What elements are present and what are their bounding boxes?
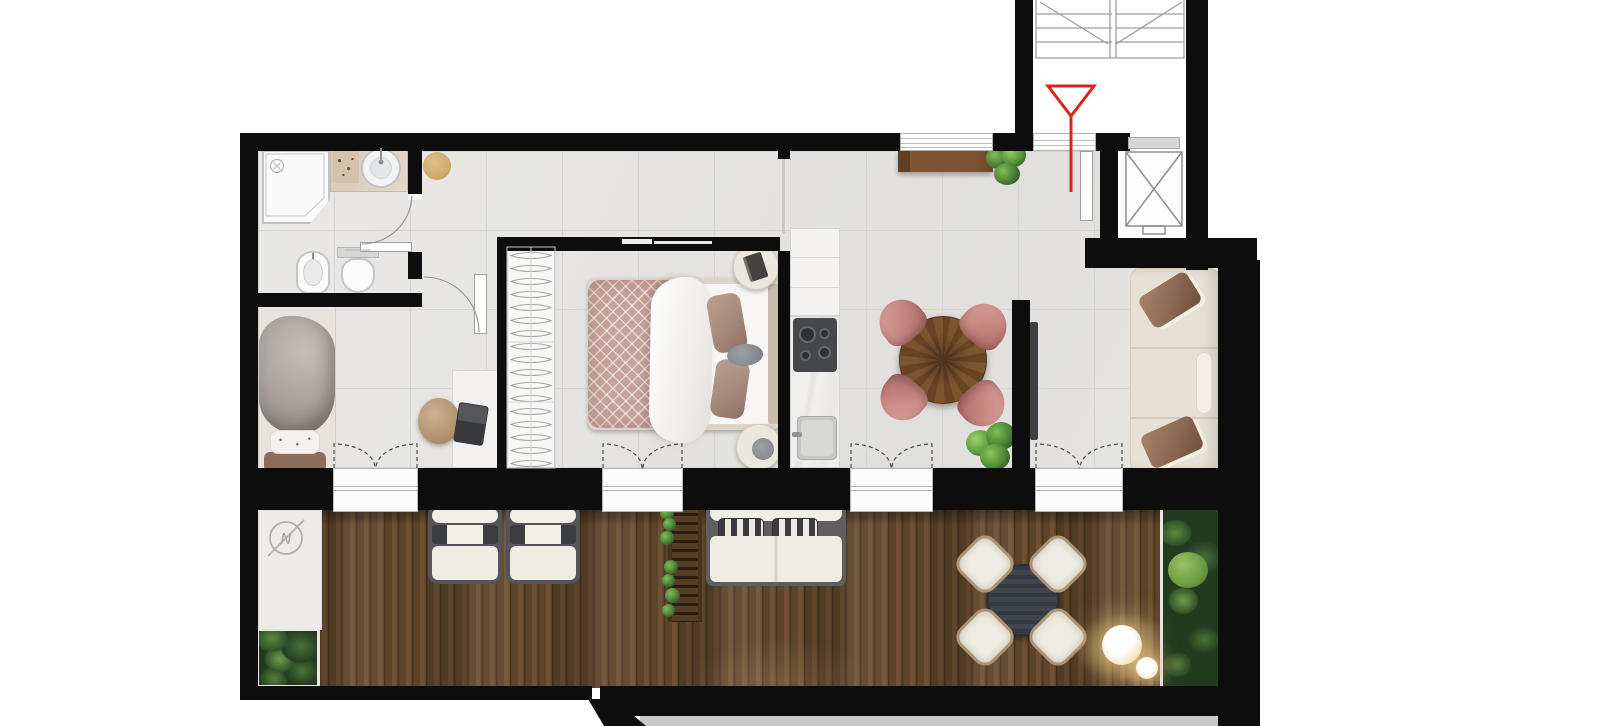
bedroom-wall-rail-b xyxy=(654,241,712,244)
planter-right xyxy=(1160,505,1222,689)
wall-wardrobe xyxy=(497,251,507,468)
wall-top xyxy=(240,133,900,151)
entrance-threshold xyxy=(1033,133,1096,151)
terrace-paving xyxy=(258,510,322,630)
vine-leaves xyxy=(665,588,680,603)
laptop xyxy=(453,402,489,446)
vine-leaves xyxy=(662,604,675,617)
sideboard xyxy=(898,150,993,172)
kitchen-faucet xyxy=(792,432,802,437)
lounger-cushion xyxy=(432,546,498,580)
sun-lounger-2 xyxy=(506,504,580,584)
burner-3 xyxy=(800,350,811,361)
leaf-cluster xyxy=(994,163,1020,185)
elevator-room-floor xyxy=(1118,151,1186,250)
lounger-cushion xyxy=(510,546,576,580)
sun-lounger-1 xyxy=(428,504,502,584)
vine-leaves xyxy=(663,518,676,531)
bedroom2-door-leaf xyxy=(474,274,487,334)
lounger-towel xyxy=(510,525,576,544)
sofa-bolster xyxy=(1196,352,1212,414)
planter-moss-ball xyxy=(1168,552,1208,588)
staircase-icon xyxy=(1036,0,1184,58)
kitchen-glass-line xyxy=(782,153,785,233)
bidet-bowl xyxy=(303,259,323,286)
wall-kitchen xyxy=(778,251,790,468)
window-living xyxy=(900,133,993,151)
wall-bathroom-right xyxy=(408,148,422,194)
bathroom-door-frame xyxy=(408,194,422,200)
wall-bottom-right xyxy=(600,686,1250,716)
wardrobe xyxy=(507,247,555,468)
kitchen-tall-cabinet xyxy=(790,228,840,316)
leaf-cluster xyxy=(980,444,1010,470)
wall-bathroom-bottom xyxy=(240,293,422,307)
outdoor-sofa xyxy=(706,502,846,586)
single-bed-blanket xyxy=(259,316,335,434)
burner-1 xyxy=(799,326,816,343)
washbasin-bowl xyxy=(370,157,392,179)
outdoor-sofa-seat xyxy=(710,536,842,582)
terrace-door-2 xyxy=(602,468,683,512)
cooktop xyxy=(793,318,837,372)
wall-stair-core-right xyxy=(1186,0,1208,270)
terrace-door-3 xyxy=(850,468,933,512)
entrance-door-leaf xyxy=(1080,151,1093,221)
floor-lamp-small xyxy=(1136,657,1158,679)
bathroom-door-leaf xyxy=(360,242,412,252)
terrace-door-4 xyxy=(1035,468,1123,512)
floor-plan-canvas: N xyxy=(0,0,1600,726)
vine-leaves xyxy=(662,574,675,587)
vine-leaves xyxy=(664,560,678,574)
wall-stair-core-left xyxy=(1015,0,1033,151)
nightstand-bowl xyxy=(752,438,774,460)
vanity-tray xyxy=(333,151,359,183)
wall-left xyxy=(240,133,258,689)
single-bed-pillow xyxy=(270,430,320,454)
floor-lamp-large xyxy=(1102,625,1142,665)
lounger-towel xyxy=(432,525,498,544)
planter-left xyxy=(256,628,320,688)
double-bed-duvet xyxy=(649,276,714,443)
kitchen-sink-basin xyxy=(801,420,833,456)
burner-2 xyxy=(818,346,831,359)
wall-tv-partition xyxy=(1012,300,1030,468)
hall-stool xyxy=(423,152,451,180)
trellis-vine-bottom xyxy=(662,560,680,620)
elevator-sill xyxy=(1128,137,1180,149)
wall-bottom-left xyxy=(240,686,592,700)
wall-right xyxy=(1218,260,1260,726)
wall-bathroom-door-stub xyxy=(408,252,422,279)
wall-kitchen-stub xyxy=(778,151,790,159)
wall-elevator-left xyxy=(1100,133,1118,252)
toilet-bowl xyxy=(341,258,375,293)
tv xyxy=(1030,322,1038,440)
burner-4 xyxy=(819,328,830,339)
floor-plant xyxy=(966,422,1018,472)
trellis-vine-top xyxy=(660,506,678,546)
bedroom-wall-rail-a xyxy=(622,239,652,244)
lower-landing-strip xyxy=(640,716,1218,726)
vine-leaves xyxy=(660,531,674,545)
exterior-patch xyxy=(1206,151,1222,239)
lounger-pillow xyxy=(510,508,576,523)
terrace-door-1 xyxy=(333,468,418,512)
lounger-pillow xyxy=(432,508,498,523)
